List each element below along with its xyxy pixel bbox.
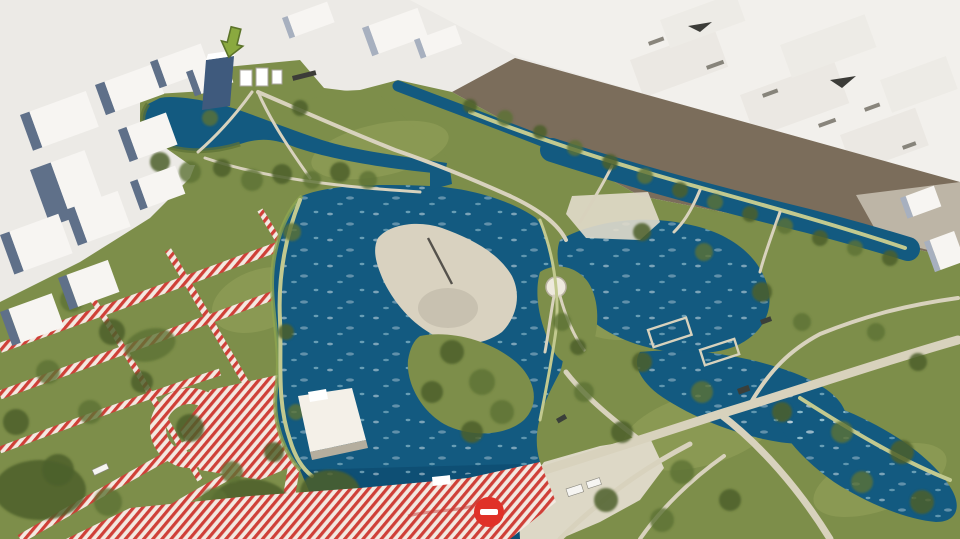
- tree: [812, 230, 828, 246]
- no-entry-bar: [480, 509, 498, 515]
- tree: [632, 352, 652, 372]
- tree: [742, 206, 758, 222]
- tree: [497, 110, 513, 126]
- tree: [752, 282, 772, 302]
- tree: [272, 164, 292, 184]
- boat-dock: [432, 475, 451, 486]
- tree: [719, 489, 741, 511]
- tree: [461, 421, 483, 443]
- tree: [691, 381, 713, 403]
- tree: [553, 313, 571, 331]
- tree: [650, 508, 674, 532]
- tree: [490, 400, 514, 424]
- tree: [574, 382, 594, 402]
- tree: [533, 125, 547, 139]
- tree: [594, 488, 618, 512]
- tree: [202, 110, 218, 126]
- sand-island-shadow: [418, 288, 478, 328]
- tree: [440, 340, 464, 364]
- tree: [637, 168, 653, 184]
- tree: [463, 99, 477, 113]
- tree: [241, 169, 263, 191]
- tree: [793, 313, 811, 331]
- tree: [359, 171, 377, 189]
- ring-plaza-tree: [176, 414, 204, 442]
- entrance-pavilion: [240, 70, 252, 86]
- tree: [567, 140, 583, 156]
- tree: [570, 339, 586, 355]
- tree: [330, 162, 350, 182]
- tree: [131, 371, 153, 393]
- tree: [831, 421, 853, 443]
- tree: [283, 223, 301, 241]
- tree: [421, 381, 443, 403]
- tree: [3, 409, 29, 435]
- tree: [264, 442, 284, 462]
- tree: [94, 488, 122, 516]
- tree: [633, 223, 651, 241]
- glass-facade-building: [202, 56, 234, 110]
- tree: [851, 471, 873, 493]
- tree: [909, 353, 927, 371]
- tree: [469, 369, 495, 395]
- tree: [611, 421, 633, 443]
- tree: [303, 171, 321, 189]
- aerial-render-canvas: [0, 0, 960, 539]
- entrance-pavilion: [272, 70, 282, 84]
- tree: [213, 159, 231, 177]
- tree: [867, 323, 885, 341]
- tree: [602, 154, 618, 170]
- tree: [179, 161, 201, 183]
- tree: [99, 319, 125, 345]
- tree: [36, 360, 60, 384]
- tree: [670, 460, 694, 484]
- tree: [221, 461, 243, 483]
- tree: [890, 440, 914, 464]
- tree: [777, 218, 793, 234]
- park-masterplan-scene: [0, 0, 960, 539]
- tree: [292, 100, 308, 116]
- tree: [910, 490, 934, 514]
- tree: [772, 402, 792, 422]
- no-entry-icon: [474, 497, 504, 527]
- tree: [882, 250, 898, 266]
- tree: [707, 194, 723, 210]
- tree: [847, 240, 863, 256]
- tree: [695, 243, 713, 261]
- tree: [672, 182, 688, 198]
- tree: [42, 454, 74, 486]
- entrance-pavilion: [256, 68, 268, 86]
- tree: [278, 324, 294, 340]
- tree: [78, 400, 102, 424]
